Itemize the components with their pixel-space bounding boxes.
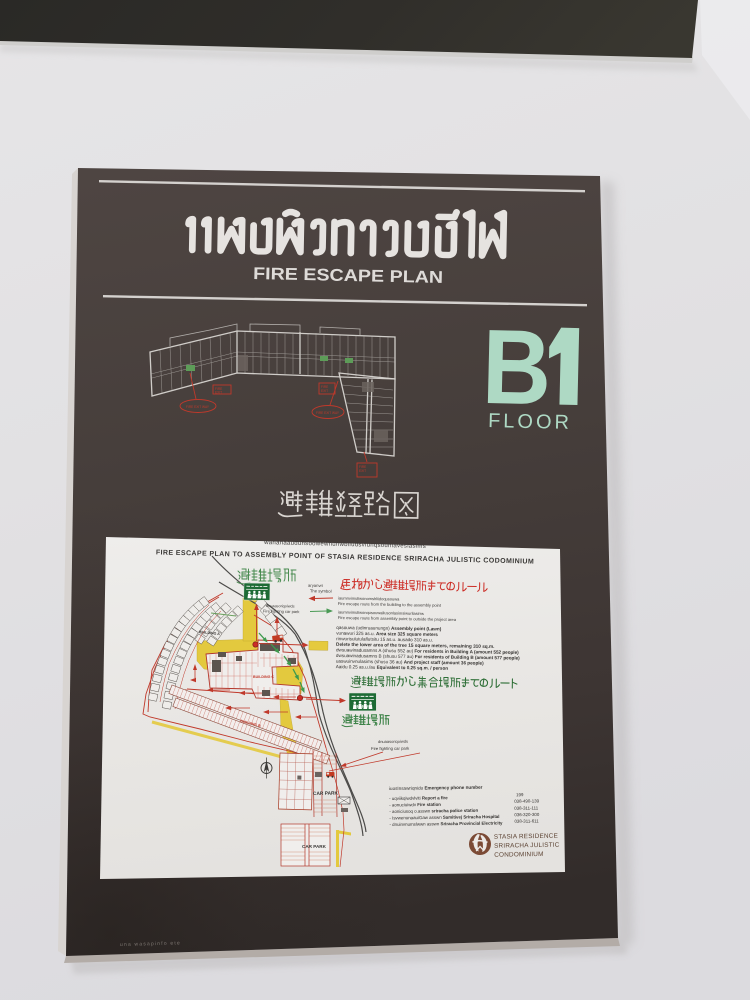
svg-text:CAR PARK: CAR PARK [302,844,327,849]
svg-text:199: 199 [516,792,524,797]
svg-text:The symbol: The symbol [310,588,332,593]
svg-text:- aonuciuiwdv Fire station: - aonuciuiwdv Fire station [389,802,441,808]
svg-text:dnuaasoriqoiwds: dnuaasoriqoiwds [378,739,408,744]
svg-text:STASIA RESIDENCE: STASIA RESIDENCE [494,833,558,841]
svg-text:EXIT: EXIT [359,469,366,473]
svg-text:038-311-611: 038-311-611 [514,818,539,823]
svg-text:FIRE EXIT WAY: FIRE EXIT WAY [186,405,210,409]
svg-text:FIRE EXIT WAY: FIRE EXIT WAY [316,411,340,415]
svg-text:Fire fighting car park: Fire fighting car park [371,746,410,751]
svg-text:036-320-300: 036-320-300 [514,812,540,817]
svg-text:CONDOMINIUM: CONDOMINIUM [494,851,544,859]
svg-text:Fire fighting car park: Fire fighting car park [263,608,300,614]
svg-text:SRIRACHA JULISTIC: SRIRACHA JULISTIC [494,842,560,850]
svg-text:FLOOR: FLOOR [488,410,572,434]
svg-text:FIRE ESCAPE PLAN: FIRE ESCAPE PLAN [253,264,443,287]
svg-text:038-490-139: 038-490-139 [514,798,540,803]
svg-text:038-311-111: 038-311-111 [514,805,539,810]
svg-text:aryanvri: aryanvri [308,583,323,588]
svg-text:EXIT: EXIT [321,389,328,393]
svg-text:BUILDING C: BUILDING C [253,675,274,679]
svg-text:- uqviikqiwdvlviti Report a fi: - uqviikqiwdvlviti Report a fire [389,795,448,801]
svg-text:EXIT: EXIT [215,391,222,395]
svg-text:CAR PARK: CAR PARK [313,791,339,797]
